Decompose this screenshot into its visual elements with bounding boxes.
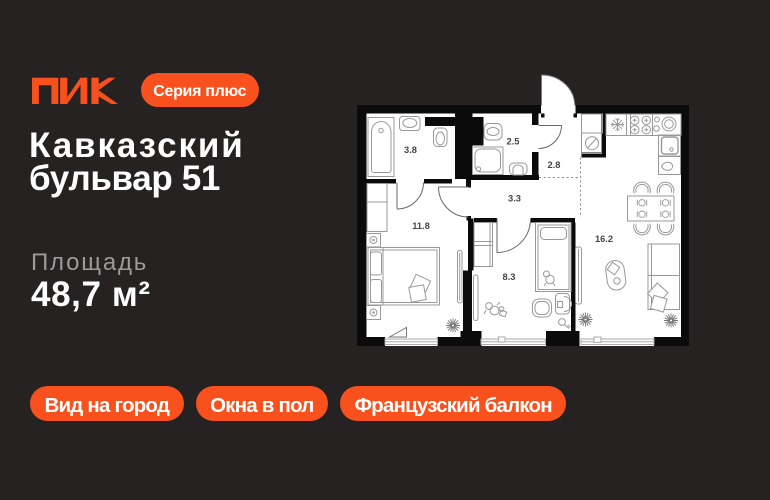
svg-text:8.3: 8.3 [503, 272, 516, 282]
svg-text:2.8: 2.8 [548, 160, 561, 170]
svg-text:16.2: 16.2 [595, 234, 613, 244]
svg-text:3.3: 3.3 [508, 194, 521, 204]
svg-text:11.8: 11.8 [412, 221, 430, 231]
svg-text:3.8: 3.8 [404, 145, 417, 155]
svg-text:2.5: 2.5 [507, 137, 520, 147]
